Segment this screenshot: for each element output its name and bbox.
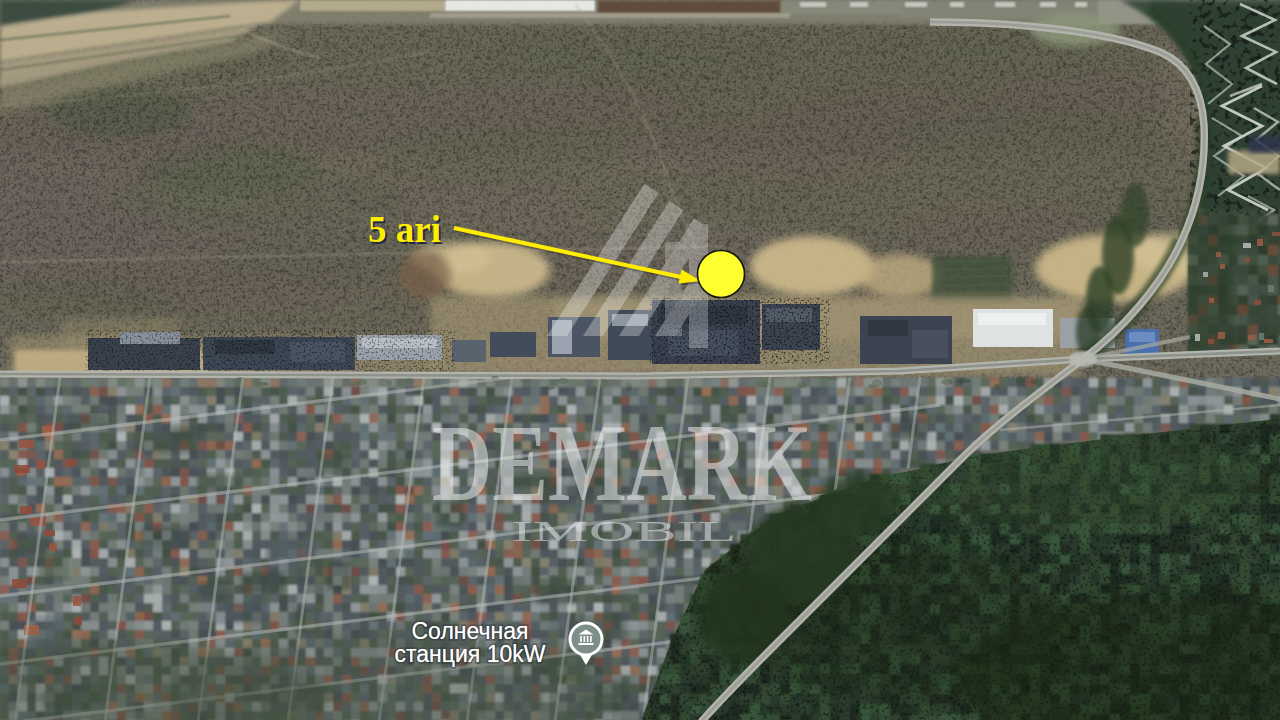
svg-text:станция 10kW: станция 10kW (395, 641, 546, 667)
svg-text:IMOBIL: IMOBIL (512, 514, 737, 547)
svg-text:5 ari: 5 ari (368, 209, 441, 250)
svg-text:DEMARK: DEMARK (432, 402, 812, 524)
